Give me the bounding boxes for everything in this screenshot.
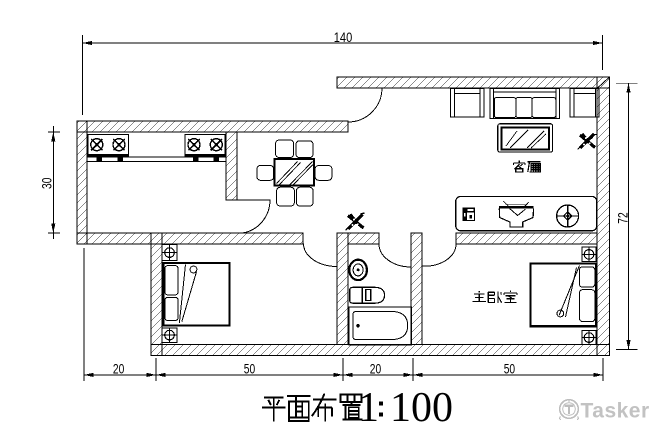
svg-text:20: 20 <box>370 360 382 376</box>
svg-text:Tasker: Tasker <box>581 399 650 422</box>
svg-text:30: 30 <box>38 177 54 189</box>
svg-text:100: 100 <box>390 385 453 431</box>
svg-text:1: 1 <box>358 385 379 431</box>
svg-text:20: 20 <box>113 360 125 376</box>
svg-text:50: 50 <box>244 360 256 376</box>
svg-text:72: 72 <box>614 212 630 224</box>
svg-text:140: 140 <box>334 30 353 45</box>
svg-text:50: 50 <box>504 360 516 376</box>
